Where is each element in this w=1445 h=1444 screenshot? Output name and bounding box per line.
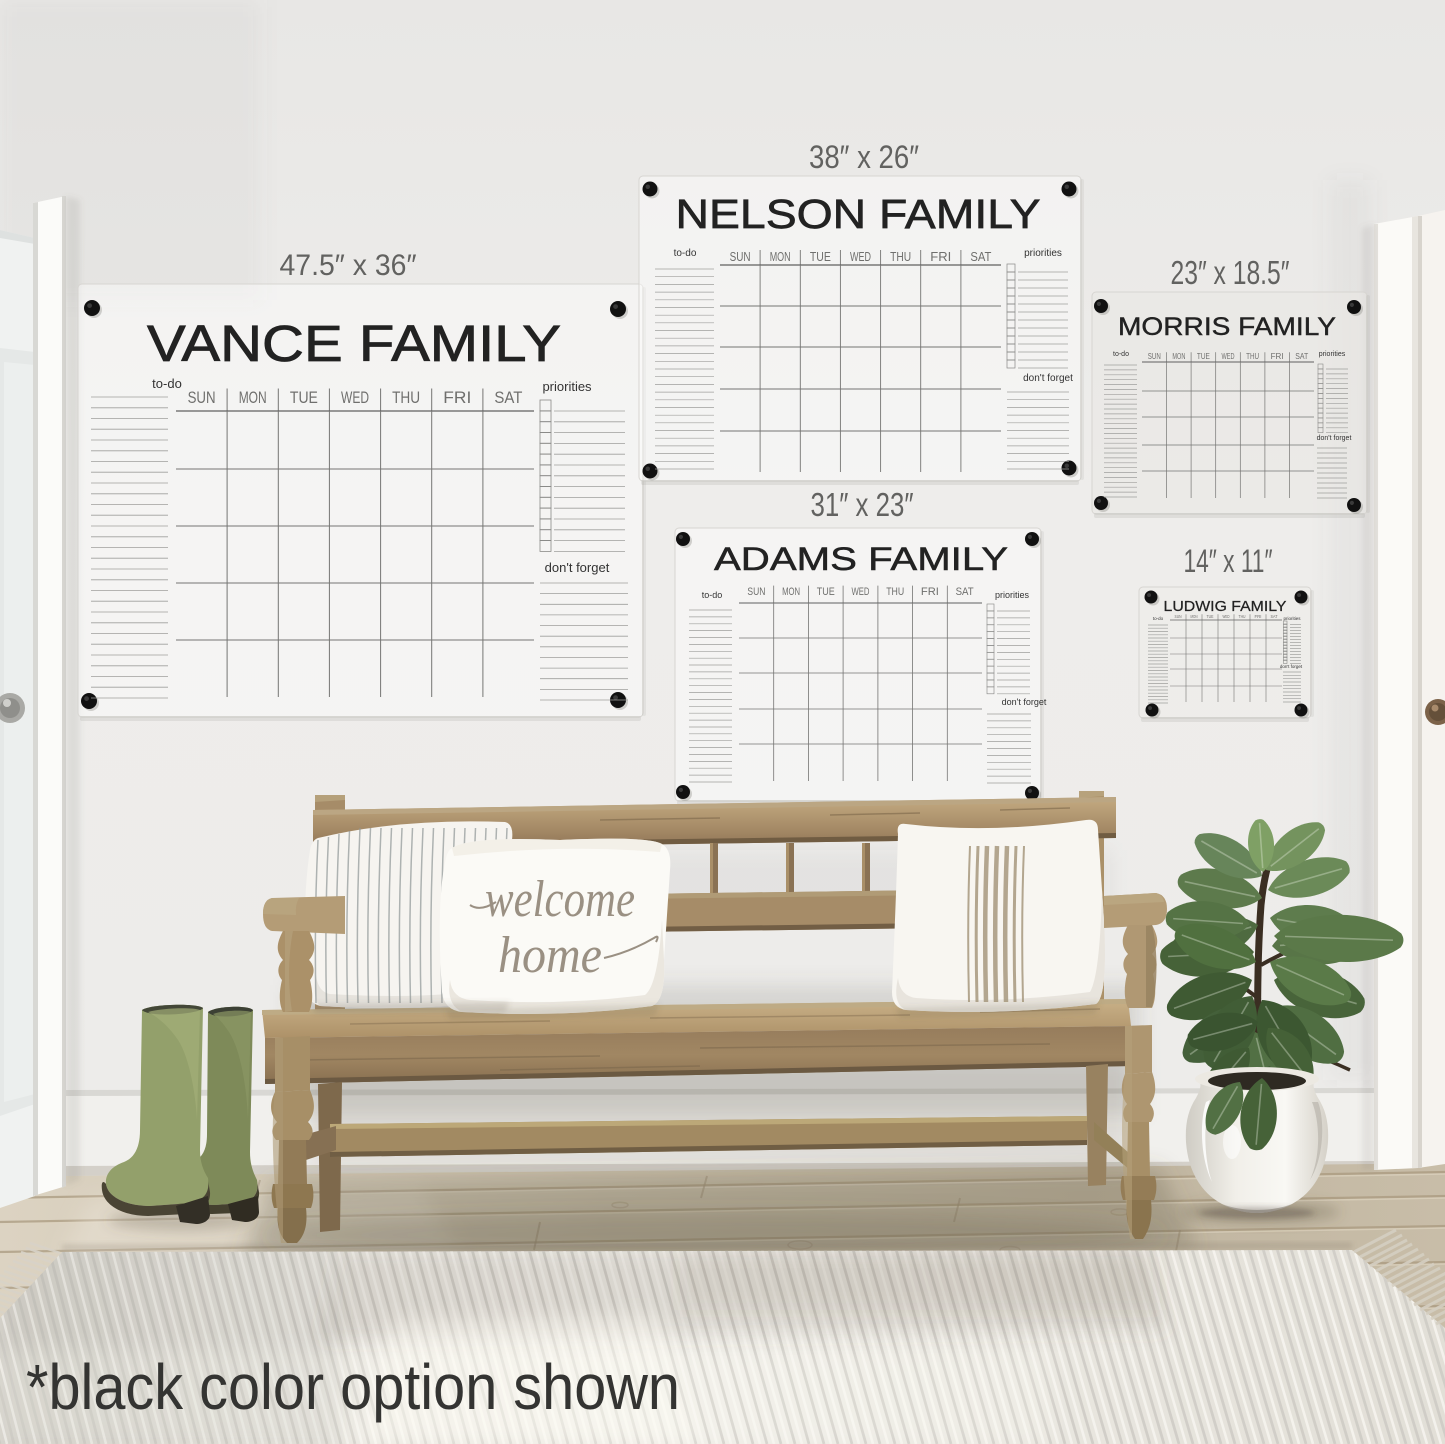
svg-text:SUN: SUN — [188, 388, 216, 407]
svg-text:WED: WED — [1223, 614, 1230, 619]
svg-text:WED: WED — [341, 388, 369, 407]
svg-text:SAT: SAT — [956, 586, 974, 598]
svg-text:MON: MON — [782, 586, 800, 598]
svg-text:priorities: priorities — [1283, 616, 1301, 621]
svg-text:NELSON FAMILY: NELSON FAMILY — [676, 191, 1041, 237]
svg-text:31″ x 23″: 31″ x 23″ — [811, 486, 914, 523]
svg-text:FRI: FRI — [921, 586, 939, 598]
svg-text:FRI: FRI — [1271, 352, 1284, 361]
svg-text:SAT: SAT — [970, 249, 991, 264]
svg-text:38″ x 26″: 38″ x 26″ — [809, 139, 919, 175]
svg-text:VANCE FAMILY: VANCE FAMILY — [147, 315, 561, 372]
svg-text:priorities: priorities — [1319, 351, 1346, 358]
svg-text:THU: THU — [890, 249, 911, 264]
svg-text:FRI: FRI — [443, 388, 471, 407]
svg-text:don't forget: don't forget — [1002, 697, 1047, 707]
svg-text:priorities: priorities — [542, 379, 592, 394]
svg-text:MORRIS FAMILY: MORRIS FAMILY — [1118, 313, 1336, 341]
svg-text:LUDWIG FAMILY: LUDWIG FAMILY — [1164, 599, 1287, 615]
svg-text:welcome: welcome — [485, 871, 635, 928]
svg-text:SAT: SAT — [1295, 352, 1308, 361]
svg-text:TUE: TUE — [817, 586, 835, 598]
svg-text:MON: MON — [239, 388, 267, 407]
svg-text:SAT: SAT — [1271, 614, 1278, 619]
svg-text:TUE: TUE — [290, 388, 318, 407]
svg-text:14″ x 11″: 14″ x 11″ — [1184, 543, 1273, 579]
svg-text:WED: WED — [852, 586, 870, 598]
svg-text:to-do: to-do — [702, 590, 723, 600]
svg-text:SUN: SUN — [1148, 352, 1161, 361]
svg-text:TUE: TUE — [1207, 614, 1214, 619]
svg-text:SUN: SUN — [747, 586, 765, 598]
svg-text:WED: WED — [850, 249, 871, 264]
svg-text:TUE: TUE — [810, 249, 831, 264]
svg-text:23″ x 18.5″: 23″ x 18.5″ — [1171, 254, 1290, 291]
svg-text:MON: MON — [1191, 614, 1198, 619]
svg-text:TUE: TUE — [1197, 352, 1210, 361]
svg-text:THU: THU — [1246, 352, 1259, 361]
svg-text:FRI: FRI — [930, 249, 951, 264]
svg-text:THU: THU — [1239, 614, 1246, 619]
svg-text:priorities: priorities — [995, 590, 1030, 600]
svg-text:SUN: SUN — [730, 249, 751, 264]
svg-text:MON: MON — [770, 249, 791, 264]
svg-text:don't forget: don't forget — [545, 560, 610, 575]
svg-text:MON: MON — [1172, 352, 1185, 361]
svg-text:to-do: to-do — [1153, 616, 1164, 621]
svg-text:SAT: SAT — [494, 388, 522, 407]
svg-text:don't forget: don't forget — [1023, 373, 1073, 384]
svg-text:SUN: SUN — [1175, 614, 1182, 619]
svg-text:don't forget: don't forget — [1280, 664, 1303, 669]
svg-text:ADAMS FAMILY: ADAMS FAMILY — [714, 541, 1008, 577]
svg-text:THU: THU — [392, 388, 420, 407]
svg-text:to-do: to-do — [152, 376, 182, 391]
svg-text:home: home — [498, 927, 602, 984]
svg-text:*black color option shown: *black color option shown — [26, 1351, 680, 1423]
svg-text:to-do: to-do — [674, 248, 697, 259]
svg-text:THU: THU — [886, 586, 904, 598]
svg-text:FRI: FRI — [1255, 614, 1262, 619]
svg-text:don't forget: don't forget — [1317, 435, 1352, 442]
svg-text:to-do: to-do — [1113, 351, 1129, 358]
svg-text:WED: WED — [1222, 352, 1235, 361]
svg-text:priorities: priorities — [1024, 248, 1062, 259]
svg-text:47.5″ x 36″: 47.5″ x 36″ — [280, 249, 417, 282]
